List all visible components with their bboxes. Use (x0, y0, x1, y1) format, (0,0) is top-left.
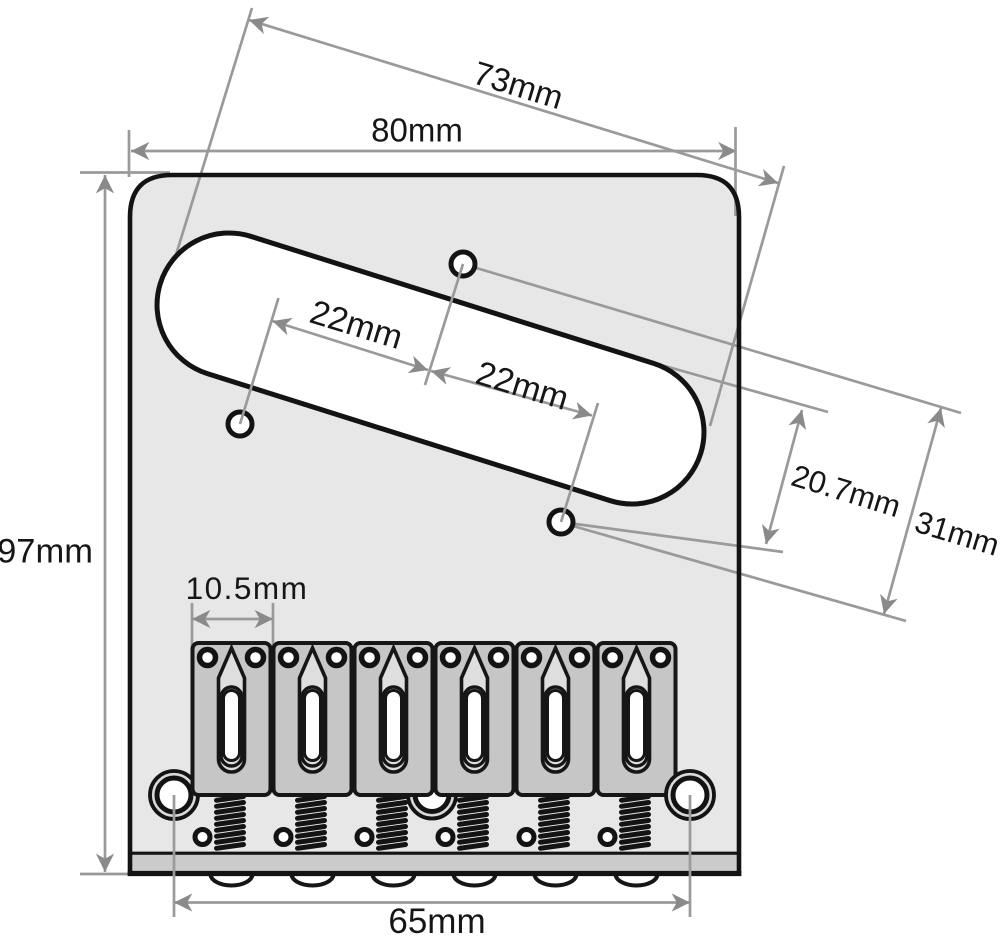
svg-text:97mm: 97mm (0, 533, 93, 571)
svg-text:10.5mm: 10.5mm (186, 570, 309, 606)
svg-text:80mm: 80mm (371, 112, 463, 149)
svg-text:65mm: 65mm (388, 902, 485, 940)
